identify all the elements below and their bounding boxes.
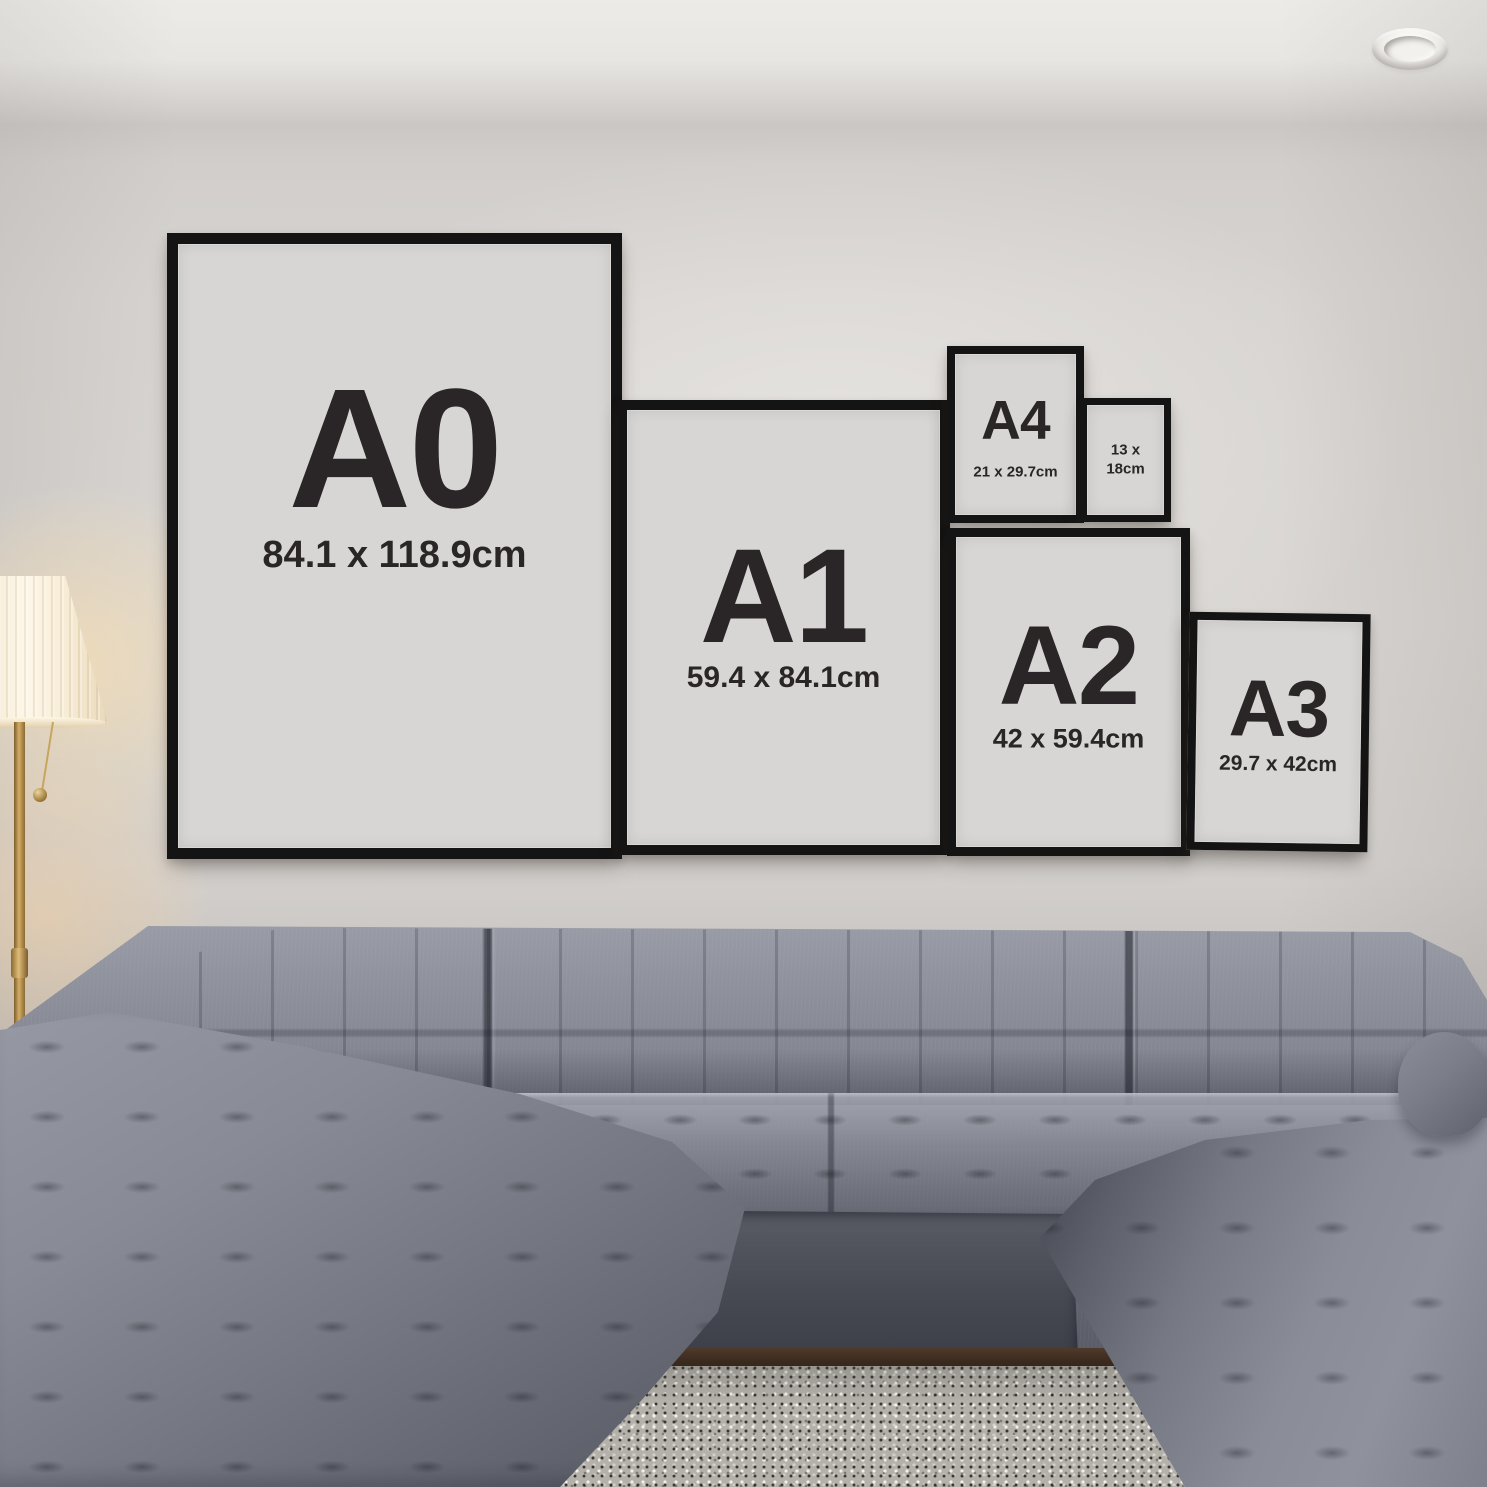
lamp-pole-joint <box>11 948 28 978</box>
sofa-arm-cushion <box>1398 1032 1487 1136</box>
poster-dimensions: 59.4 x 84.1cm <box>627 663 940 693</box>
poster-size-label: A1 <box>627 530 940 664</box>
poster-dimensions: 29.7 x 42cm <box>1195 753 1360 776</box>
dimensions-line2: 18cm <box>1087 460 1164 479</box>
poster-size-label: A0 <box>178 364 611 534</box>
poster-dimensions: 84.1 x 118.9cm <box>178 536 611 574</box>
poster-size-label: A3 <box>1196 668 1362 750</box>
poster-dimensions: 21 x 29.7cm <box>955 464 1076 479</box>
living-room-scene: A0 84.1 x 118.9cm A1 59.4 x 84.1cm A4 21… <box>0 0 1487 1487</box>
dimensions-line1: 13 x <box>1087 441 1164 460</box>
ceiling-light <box>1372 28 1448 70</box>
poster-frame-a1: A1 59.4 x 84.1cm <box>617 400 950 855</box>
poster-dimensions: 13 x 18cm <box>1087 441 1164 479</box>
poster-size-label: A4 <box>955 393 1076 448</box>
poster-frame-13x18: 13 x 18cm <box>1080 398 1171 522</box>
poster-frame-a2: A2 42 x 59.4cm <box>947 528 1190 856</box>
poster-dimensions: 42 x 59.4cm <box>956 725 1181 752</box>
lamp-pull-chain-ball <box>33 788 47 802</box>
poster-frame-a4: A4 21 x 29.7cm <box>947 346 1084 523</box>
poster-size-label: A2 <box>956 610 1181 722</box>
ceiling-light-bulb <box>1384 36 1436 62</box>
poster-frame-a3: A3 29.7 x 42cm <box>1186 612 1370 853</box>
poster-frame-a0: A0 84.1 x 118.9cm <box>167 233 622 859</box>
